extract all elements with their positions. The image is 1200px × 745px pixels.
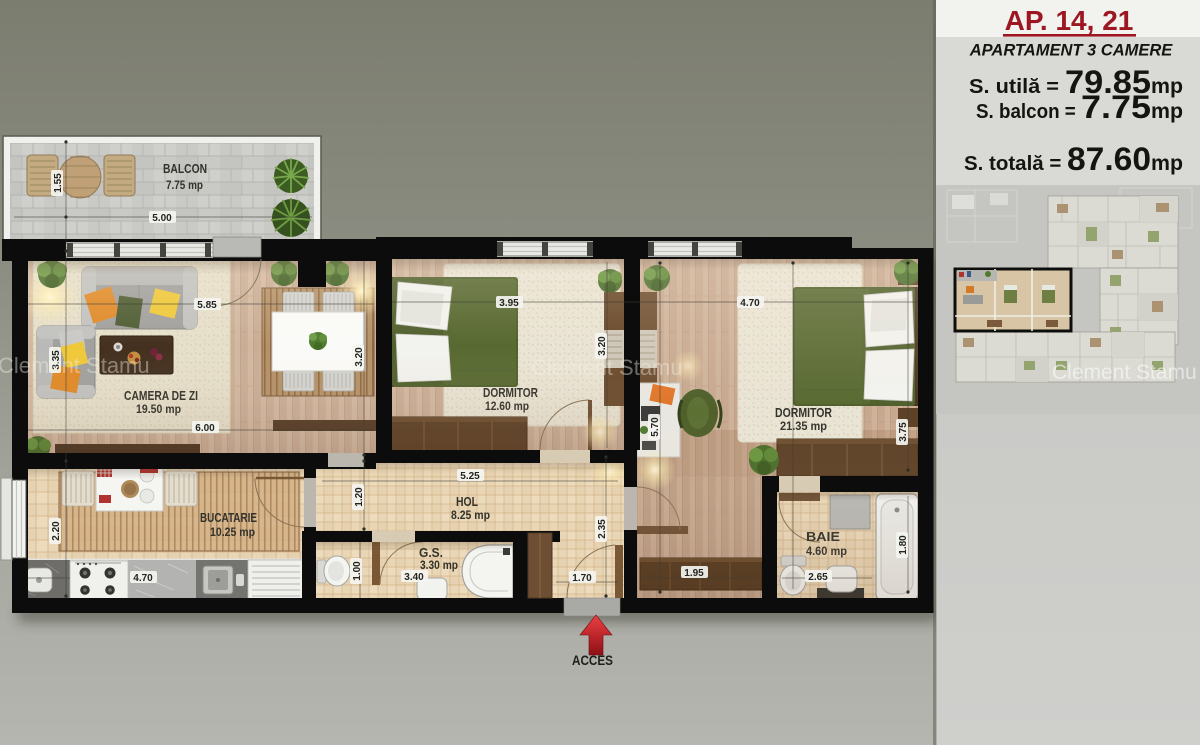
svg-text:1.20: 1.20 bbox=[354, 487, 365, 507]
svg-text:2.20: 2.20 bbox=[51, 521, 62, 541]
svg-text:3.20: 3.20 bbox=[354, 347, 365, 367]
svg-text:1.95: 1.95 bbox=[684, 568, 704, 579]
svg-text:Clement Stamu: Clement Stamu bbox=[1052, 361, 1197, 384]
svg-text:3.40: 3.40 bbox=[404, 572, 424, 583]
svg-text:2.35: 2.35 bbox=[597, 519, 608, 539]
svg-text:HOL: HOL bbox=[456, 494, 478, 509]
svg-text:BUCATARIE: BUCATARIE bbox=[200, 510, 257, 525]
svg-text:7.75 mp: 7.75 mp bbox=[166, 180, 203, 192]
svg-text:10.25 mp: 10.25 mp bbox=[210, 527, 255, 539]
svg-text:2.65: 2.65 bbox=[808, 572, 828, 583]
svg-text:6.00: 6.00 bbox=[195, 423, 215, 434]
svg-text:5.85: 5.85 bbox=[197, 300, 217, 311]
svg-text:Clement Stamu: Clement Stamu bbox=[0, 353, 150, 378]
svg-text:APARTAMENT 3 CAMERE: APARTAMENT 3 CAMERE bbox=[969, 42, 1174, 60]
svg-text:3.75: 3.75 bbox=[898, 422, 909, 442]
svg-text:BALCON: BALCON bbox=[163, 161, 207, 176]
svg-text:4.70: 4.70 bbox=[133, 573, 153, 584]
svg-text:5.25: 5.25 bbox=[460, 471, 480, 482]
svg-text:AP. 14, 21: AP. 14, 21 bbox=[1005, 5, 1134, 36]
svg-text:3.95: 3.95 bbox=[499, 298, 519, 309]
svg-text:1.00: 1.00 bbox=[352, 561, 363, 581]
svg-text:8.25 mp: 8.25 mp bbox=[451, 510, 490, 522]
svg-text:4.70: 4.70 bbox=[740, 298, 760, 309]
svg-text:5.70: 5.70 bbox=[650, 417, 661, 437]
svg-text:1.80: 1.80 bbox=[898, 535, 909, 555]
svg-text:ACCES: ACCES bbox=[572, 653, 613, 668]
svg-text:1.55: 1.55 bbox=[53, 173, 64, 193]
svg-text:5.00: 5.00 bbox=[152, 213, 172, 224]
svg-text:Clement Stamu: Clement Stamu bbox=[531, 355, 683, 380]
svg-text:3.20: 3.20 bbox=[597, 336, 608, 356]
svg-text:1.70: 1.70 bbox=[572, 573, 592, 584]
